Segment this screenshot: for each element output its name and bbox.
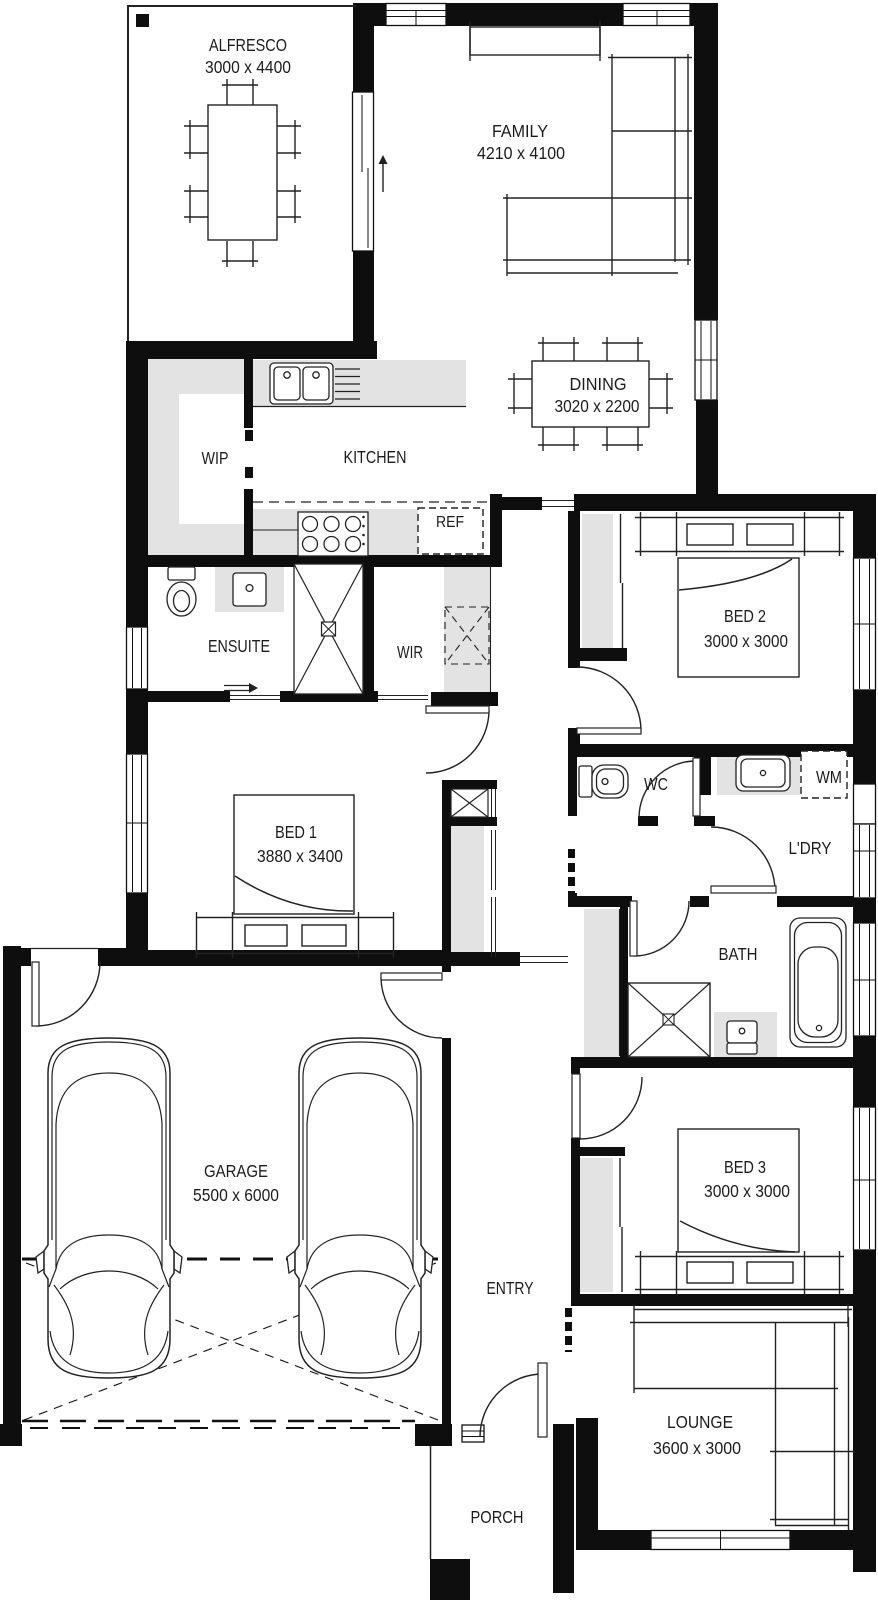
svg-text:BED 2: BED 2 — [724, 606, 766, 626]
svg-text:3600 x 3000: 3600 x 3000 — [653, 1438, 741, 1458]
svg-text:KITCHEN: KITCHEN — [344, 447, 407, 467]
svg-text:WIR: WIR — [397, 642, 423, 662]
svg-text:BED 3: BED 3 — [724, 1157, 766, 1177]
svg-text:BATH: BATH — [719, 944, 758, 964]
svg-text:3000 x 3000: 3000 x 3000 — [704, 1181, 790, 1201]
svg-text:WIP: WIP — [202, 448, 229, 468]
svg-text:WM: WM — [816, 767, 842, 787]
svg-text:ENTRY: ENTRY — [487, 1278, 534, 1298]
svg-text:WC: WC — [644, 774, 668, 794]
svg-text:3020 x 2200: 3020 x 2200 — [555, 396, 640, 416]
svg-text:3880 x 3400: 3880 x 3400 — [257, 846, 343, 866]
svg-text:3000 x 4400: 3000 x 4400 — [205, 57, 291, 77]
svg-text:ALFRESCO: ALFRESCO — [209, 35, 287, 55]
svg-text:5500 x 6000: 5500 x 6000 — [193, 1185, 279, 1205]
svg-text:BED 1: BED 1 — [275, 822, 317, 842]
svg-text:LOUNGE: LOUNGE — [667, 1412, 733, 1432]
svg-text:3000 x 3000: 3000 x 3000 — [704, 631, 788, 651]
svg-text:ENSUITE: ENSUITE — [208, 636, 270, 656]
svg-text:4210 x 4100: 4210 x 4100 — [477, 143, 565, 163]
svg-text:FAMILY: FAMILY — [492, 121, 548, 141]
svg-text:REF: REF — [436, 514, 464, 531]
svg-text:DINING: DINING — [570, 374, 627, 394]
svg-text:L'DRY: L'DRY — [789, 838, 832, 858]
svg-text:PORCH: PORCH — [471, 1507, 524, 1527]
svg-text:GARAGE: GARAGE — [204, 1161, 268, 1181]
